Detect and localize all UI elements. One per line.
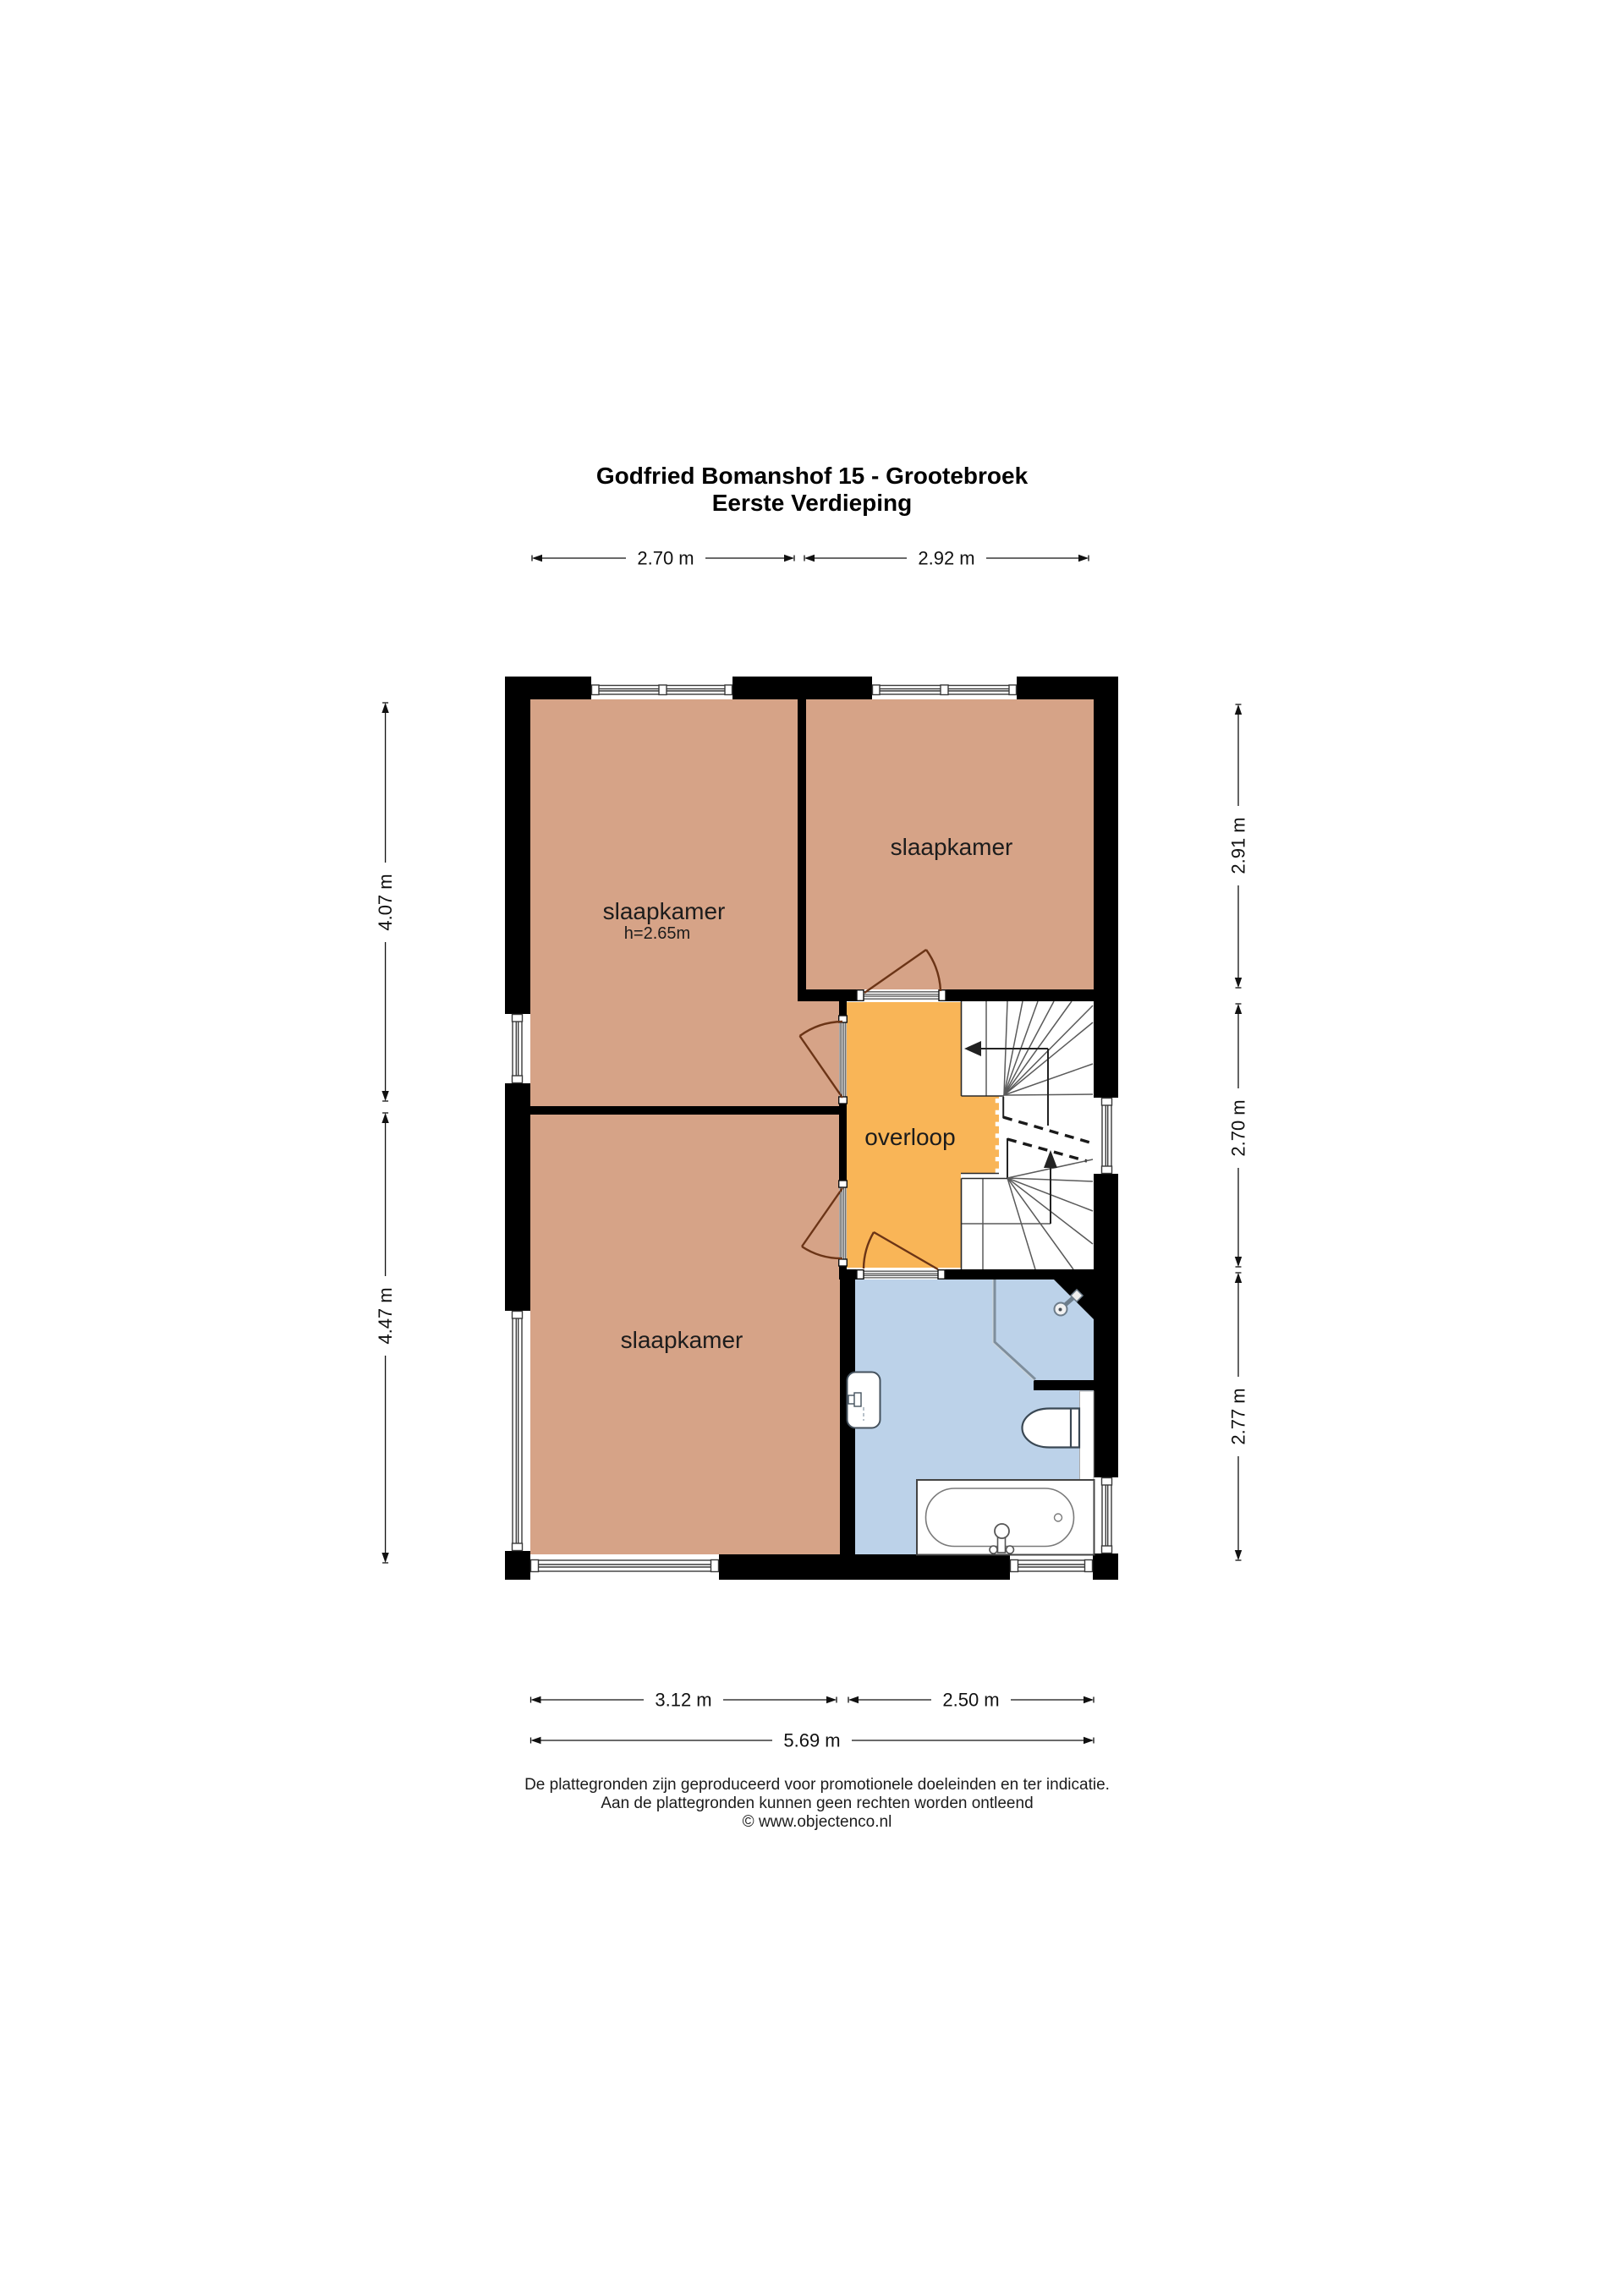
svg-text:2.91 m: 2.91 m bbox=[1228, 817, 1249, 874]
svg-text:overloop: overloop bbox=[864, 1124, 955, 1150]
svg-text:3.12 m: 3.12 m bbox=[655, 1690, 711, 1711]
svg-text:2.92 m: 2.92 m bbox=[918, 548, 974, 569]
svg-text:4.07 m: 4.07 m bbox=[375, 874, 396, 930]
svg-text:Eerste Verdieping: Eerste Verdieping bbox=[712, 490, 913, 516]
svg-text:2.50 m: 2.50 m bbox=[942, 1690, 999, 1711]
svg-text:Aan de plattegronden kunnen ge: Aan de plattegronden kunnen geen rechten… bbox=[601, 1795, 1033, 1812]
svg-text:4.47 m: 4.47 m bbox=[375, 1287, 396, 1344]
svg-text:Godfried Bomanshof 15 - Groote: Godfried Bomanshof 15 - Grootebroek bbox=[596, 463, 1029, 489]
svg-text:2.70 m: 2.70 m bbox=[637, 548, 694, 569]
svg-text:2.77 m: 2.77 m bbox=[1228, 1388, 1249, 1444]
svg-text:5.69 m: 5.69 m bbox=[783, 1730, 840, 1751]
svg-text:slaapkamer: slaapkamer bbox=[891, 834, 1013, 860]
svg-text:slaapkamer: slaapkamer bbox=[621, 1327, 743, 1353]
svg-text:© www.objectenco.nl: © www.objectenco.nl bbox=[743, 1813, 892, 1831]
svg-text:h=2.65m: h=2.65m bbox=[624, 924, 690, 943]
svg-text:2.70 m: 2.70 m bbox=[1228, 1099, 1249, 1156]
svg-text:De plattegronden zijn geproduc: De plattegronden zijn geproduceerd voor … bbox=[524, 1776, 1110, 1794]
svg-text:slaapkamer: slaapkamer bbox=[603, 898, 726, 924]
